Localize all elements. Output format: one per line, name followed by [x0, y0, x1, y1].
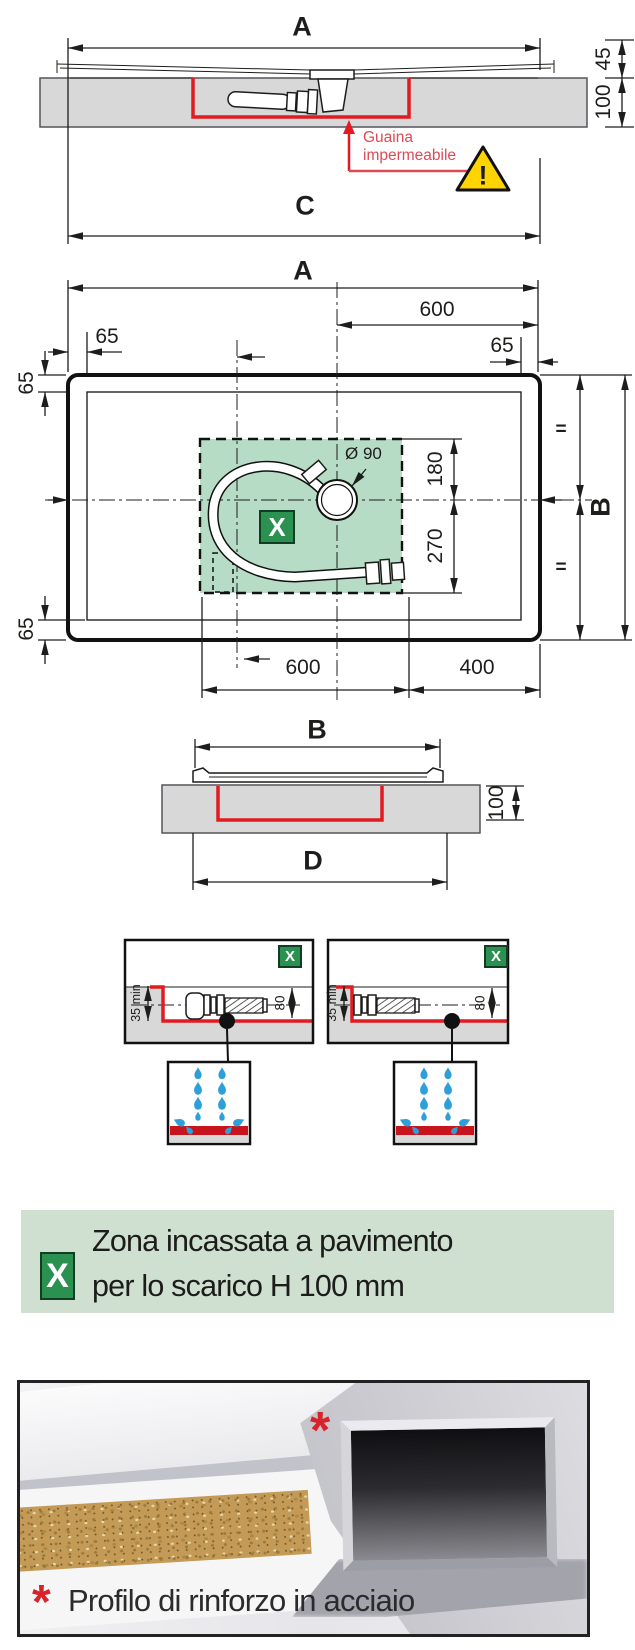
installation-diagram-page: A 45 100 Guaina impermeabile C ! A 600 6… [0, 0, 635, 1650]
callout-dot [444, 1013, 460, 1029]
steel-box-profile [341, 1417, 558, 1571]
shower-water-icon-2 [394, 1062, 476, 1144]
dim-label-270: 270 [424, 528, 448, 563]
dim-label-100: 100 [592, 84, 616, 119]
dim-label-600-bottom: 600 [285, 656, 320, 680]
legend-line-2: per lo scarico H 100 mm [92, 1264, 453, 1309]
profile-asterisk-marker: * [310, 1401, 330, 1461]
pipe-height-label-1: 80 [273, 995, 288, 1010]
dim-label-65-top-right: 65 [490, 334, 513, 358]
photo-caption: Profilo di rinforzo in acciaio [68, 1583, 414, 1619]
dim-label-180: 180 [424, 451, 448, 486]
floor-slab-b [162, 785, 480, 833]
drain-diameter-label: Ø 90 [345, 444, 382, 464]
detail-x-badge-1: X [278, 945, 302, 968]
dim-label-600-top: 600 [419, 298, 454, 322]
shower-tray-profile [57, 60, 554, 78]
membrane-label-line2: impermeabile [363, 147, 456, 165]
dim-label-b: B [307, 715, 327, 746]
tray-profile-b [193, 768, 443, 782]
zone-x-badge: X [259, 510, 295, 544]
caption-asterisk: * [32, 1575, 51, 1630]
detail-x-badge-2: X [484, 945, 508, 968]
cross-section-b [162, 739, 524, 890]
legend-x-badge: X [40, 1252, 75, 1300]
legend-line-1: Zona incassata a pavimento [92, 1219, 453, 1264]
drain-pipe-straight [354, 995, 419, 1015]
callout-dot [219, 1013, 235, 1029]
dim-label-65-left: 65 [15, 371, 39, 394]
dim-label-d: D [303, 846, 323, 877]
dim-label-c: C [295, 191, 315, 222]
dim-label-a-plan: A [293, 256, 313, 287]
membrane-label-line1: Guaina [363, 129, 413, 147]
min-height-label-1: 35 min [129, 984, 143, 1022]
drain-hole [317, 480, 357, 520]
legend-banner: X Zona incassata a pavimento per lo scar… [21, 1210, 614, 1313]
warning-exclamation: ! [479, 161, 488, 192]
dim-label-100-b: 100 [485, 785, 509, 820]
min-height-label-2: 35 min [325, 984, 339, 1022]
steel-profile-photo: * * Profilo di rinforzo in acciaio [17, 1380, 590, 1637]
cross-section-a [40, 38, 634, 244]
shower-water-icon-1 [168, 1062, 250, 1144]
pipe-height-label-2: 80 [473, 995, 488, 1010]
drain-trap [227, 70, 354, 114]
dim-label-45: 45 [592, 47, 616, 70]
dim-label-b-plan: B [586, 497, 617, 517]
equality-mark-bottom: = [555, 557, 566, 579]
dim-label-65-bottom-left: 65 [15, 617, 39, 640]
legend-text: Zona incassata a pavimento per lo scaric… [92, 1219, 453, 1309]
plan-view [38, 280, 632, 700]
dim-label-65-top-left: 65 [95, 325, 118, 349]
equality-mark-top: = [555, 419, 566, 441]
dim-label-400-bottom: 400 [459, 656, 494, 680]
dim-label-a: A [292, 12, 312, 43]
